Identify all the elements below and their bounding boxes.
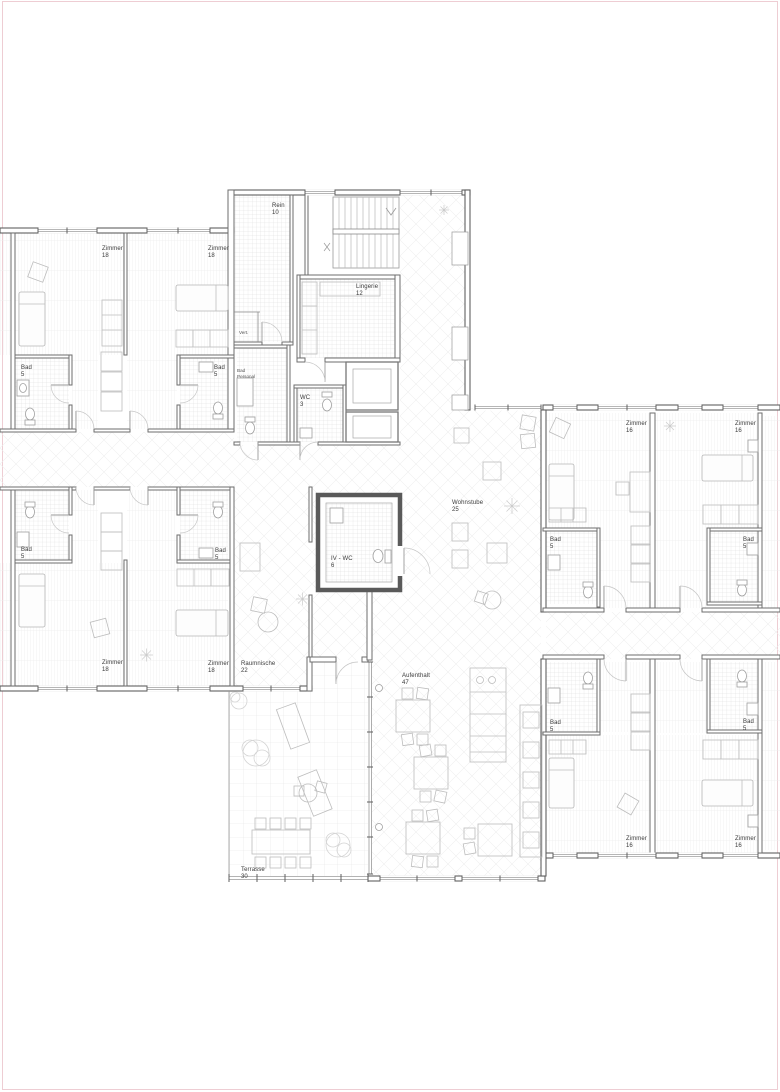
toilet — [583, 582, 593, 598]
room-label-zimmer-tr-1: Zimmer — [626, 421, 647, 427]
plant — [439, 205, 449, 215]
column — [376, 824, 383, 831]
floor-plan-drawing: Rein10 Zimmer18 Zimmer18 Bad5 Bad5 Vert.… — [0, 0, 780, 1092]
window — [305, 190, 335, 196]
stair-railing — [333, 229, 399, 234]
window — [475, 405, 541, 411]
window — [553, 853, 577, 859]
toilet — [322, 392, 332, 411]
column — [376, 685, 383, 692]
window — [38, 228, 97, 234]
stairs — [324, 197, 399, 268]
toilet — [25, 408, 35, 425]
window — [400, 190, 462, 196]
stair-direction-arrow — [386, 208, 396, 215]
room-label-vert: Vert. — [239, 330, 248, 335]
toilet — [213, 402, 223, 419]
window — [723, 853, 758, 859]
shaft-boxes — [346, 362, 398, 442]
window — [243, 686, 300, 692]
window — [38, 686, 97, 692]
stair-marker — [324, 243, 330, 251]
window — [678, 853, 702, 859]
window — [147, 686, 210, 692]
window — [462, 876, 538, 882]
window — [598, 405, 656, 411]
toilet — [245, 417, 255, 434]
floor-plan-page: Rein10 Zimmer18 Zimmer18 Bad5 Bad5 Vert.… — [0, 0, 780, 1092]
toilet — [737, 580, 747, 596]
toilet — [737, 670, 747, 687]
room-label-zimmer-tr-1-area: 16 — [626, 428, 633, 434]
toilet — [25, 502, 35, 518]
window — [678, 405, 702, 411]
window — [598, 853, 656, 859]
toilet — [583, 672, 593, 689]
window — [380, 876, 455, 882]
toilet — [213, 502, 223, 518]
window — [553, 405, 577, 411]
window — [723, 405, 758, 411]
window — [147, 228, 210, 234]
